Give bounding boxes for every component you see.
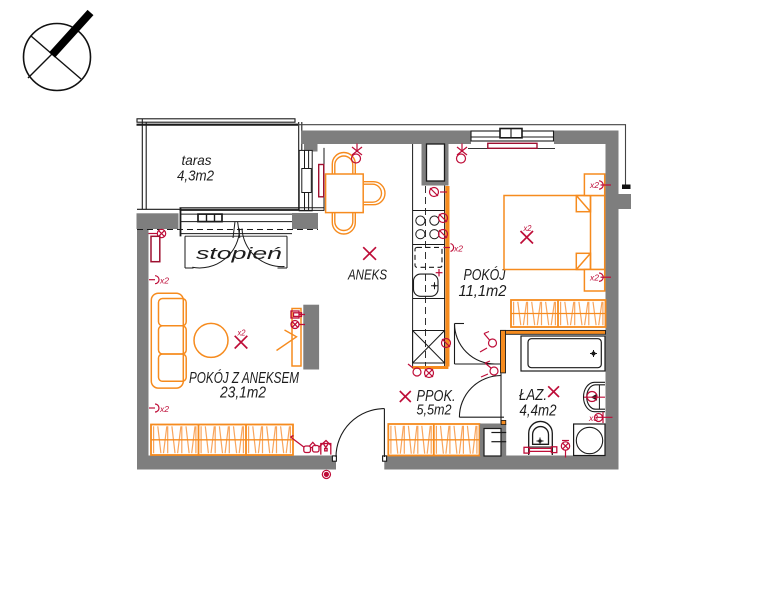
svg-text:x2: x2 xyxy=(523,223,532,233)
svg-text:x2: x2 xyxy=(159,404,169,414)
svg-text:x3: x3 xyxy=(588,413,598,423)
svg-text:stopień: stopień xyxy=(196,245,282,263)
svg-text:23,1m2: 23,1m2 xyxy=(219,385,266,402)
svg-text:x2: x2 xyxy=(589,180,599,190)
svg-text:x2: x2 xyxy=(237,328,246,338)
svg-text:x2: x2 xyxy=(159,276,169,286)
svg-text:ANEKS: ANEKS xyxy=(347,267,387,284)
svg-text:POKÓJ: POKÓJ xyxy=(464,267,506,284)
svg-text:11,1m2: 11,1m2 xyxy=(459,283,507,300)
svg-text:ŁAZ.: ŁAZ. xyxy=(519,387,547,404)
svg-text:5,5m2: 5,5m2 xyxy=(417,402,453,419)
svg-text:4,3m2: 4,3m2 xyxy=(177,169,214,185)
svg-text:4,4m2: 4,4m2 xyxy=(520,403,557,420)
svg-text:x2: x2 xyxy=(453,244,463,254)
svg-text:taras: taras xyxy=(182,152,212,168)
svg-text:x2: x2 xyxy=(589,273,599,283)
